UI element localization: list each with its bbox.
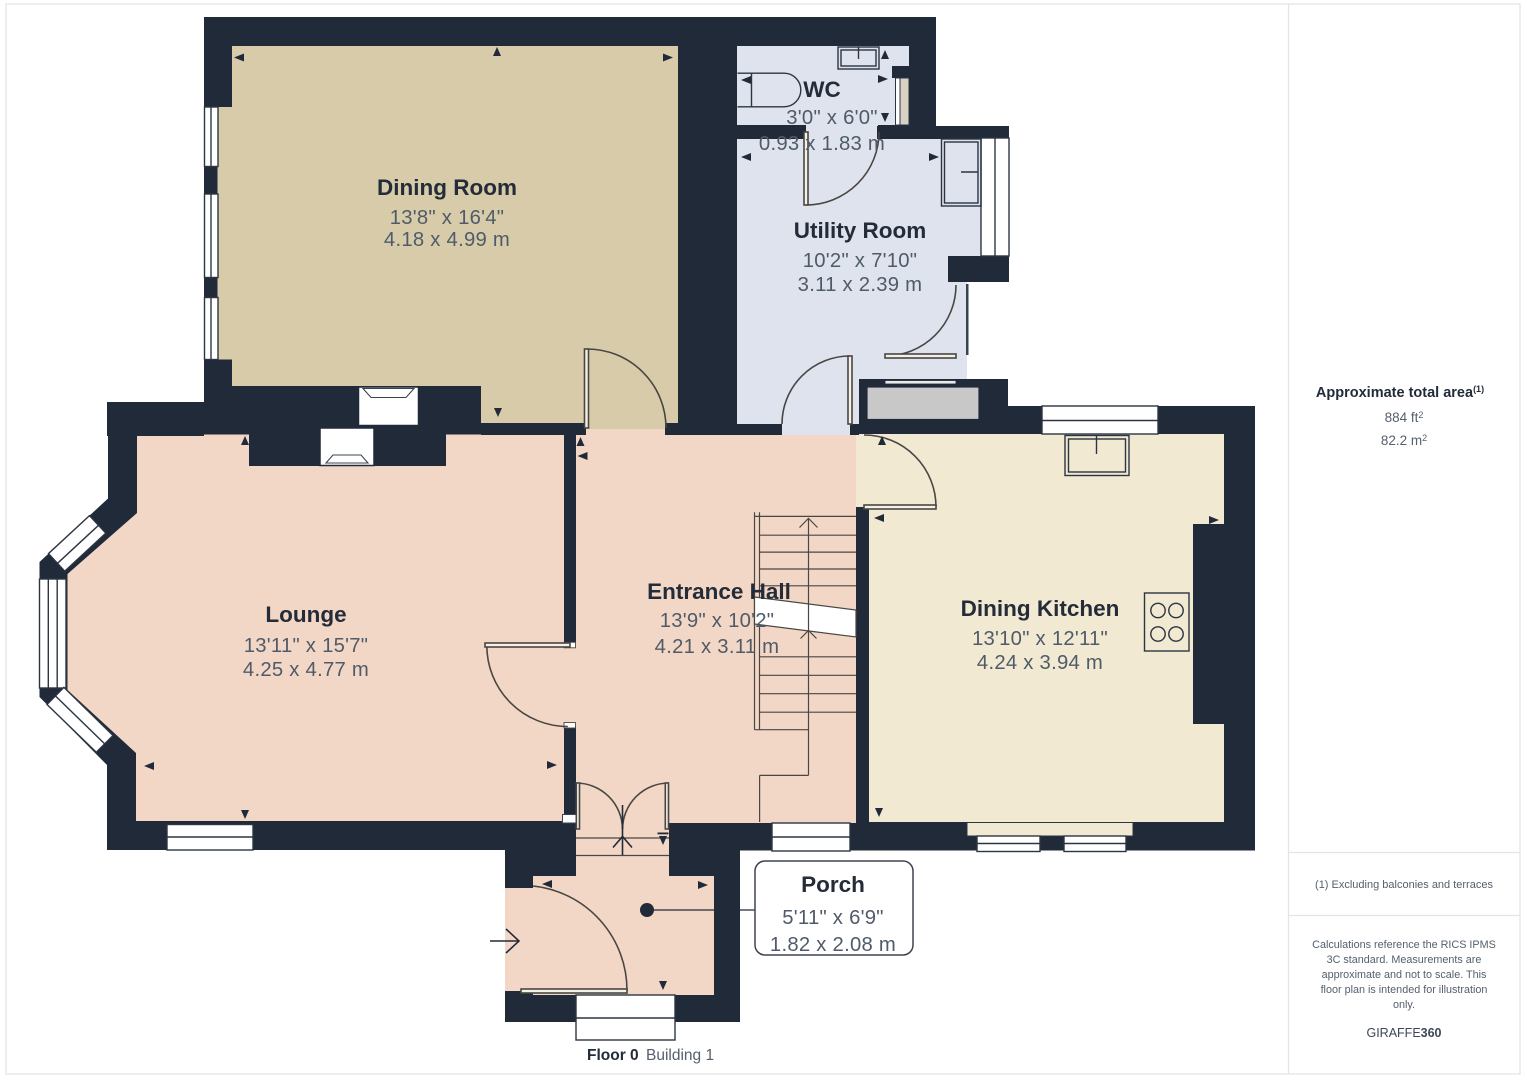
svg-text:4.21 x 3.11 m: 4.21 x 3.11 m <box>655 636 780 658</box>
svg-text:only.: only. <box>1393 999 1415 1011</box>
svg-text:Dining Room: Dining Room <box>377 175 517 200</box>
svg-text:Calculations reference the RIC: Calculations reference the RICS IPMS <box>1312 939 1496 951</box>
svg-text:Entrance Hall: Entrance Hall <box>647 579 791 604</box>
svg-text:Dining Kitchen: Dining Kitchen <box>961 596 1120 621</box>
svg-text:0.93 x 1.83 m: 0.93 x 1.83 m <box>759 133 885 155</box>
svg-text:13'9" x 10'2": 13'9" x 10'2" <box>660 610 774 632</box>
svg-text:3'0" x 6'0": 3'0" x 6'0" <box>786 107 877 129</box>
svg-text:13'8" x 16'4": 13'8" x 16'4" <box>390 207 504 229</box>
svg-text:GIRAFFE360: GIRAFFE360 <box>1366 1026 1441 1040</box>
svg-text:5'11" x 6'9": 5'11" x 6'9" <box>782 907 883 929</box>
svg-text:Porch: Porch <box>801 872 865 897</box>
svg-text:82.2 m2: 82.2 m2 <box>1381 433 1427 448</box>
svg-text:approximate and not to scale.: approximate and not to scale. This <box>1322 969 1487 981</box>
svg-text:4.18 x 4.99 m: 4.18 x 4.99 m <box>384 229 510 251</box>
svg-text:Floor 0: Floor 0 <box>587 1047 639 1064</box>
svg-text:13'11" x 15'7": 13'11" x 15'7" <box>244 635 369 657</box>
svg-text:1.82 x 2.08 m: 1.82 x 2.08 m <box>770 934 896 956</box>
svg-text:3C standard. Measurements are: 3C standard. Measurements are <box>1327 954 1482 966</box>
svg-text:4.25 x 4.77 m: 4.25 x 4.77 m <box>243 659 369 681</box>
svg-text:3.11 x 2.39 m: 3.11 x 2.39 m <box>798 274 923 296</box>
svg-text:13'10" x 12'11": 13'10" x 12'11" <box>972 628 1108 650</box>
svg-text:Building 1: Building 1 <box>646 1047 714 1064</box>
svg-text:(1) Excluding balconies and te: (1) Excluding balconies and terraces <box>1315 879 1493 891</box>
svg-text:Lounge: Lounge <box>265 602 346 627</box>
svg-text:WC: WC <box>803 77 841 102</box>
svg-text:Utility Room: Utility Room <box>794 218 927 243</box>
svg-text:4.24 x 3.94 m: 4.24 x 3.94 m <box>977 652 1103 674</box>
svg-text:10'2" x 7'10": 10'2" x 7'10" <box>803 250 917 272</box>
svg-text:Approximate total area(1): Approximate total area(1) <box>1316 384 1484 401</box>
svg-text:884 ft2: 884 ft2 <box>1385 410 1424 425</box>
svg-text:floor plan is intended for ill: floor plan is intended for illustration <box>1321 984 1488 996</box>
